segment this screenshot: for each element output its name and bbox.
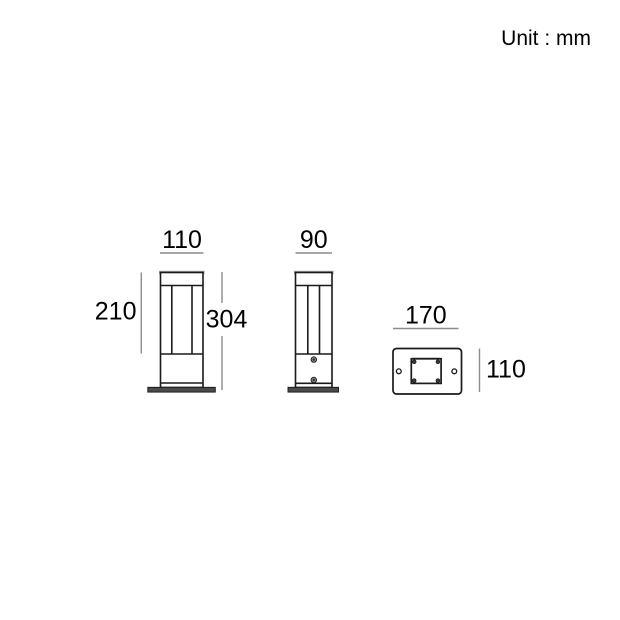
side-base-plate [288,387,339,392]
side-view: 90 [288,226,339,392]
mounting-hole-icon [452,369,457,374]
front-total-height-dim-label: 304 [206,306,248,334]
front-body-outline [161,273,204,388]
drawing-svg: 110 210 304 [0,0,620,620]
side-body-outline [296,273,333,388]
base-plate-view: 170 110 [393,302,526,395]
side-width-dim-label: 90 [300,226,328,254]
screw-icon [311,357,316,362]
screw-icon [412,360,416,364]
technical-drawing-page: Unit : mm 110 210 [0,0,620,620]
front-width-dim-label: 110 [162,226,202,254]
front-base-plate [148,387,216,392]
front-upper-height-dim-label: 210 [95,298,137,326]
unit-label: Unit : mm [501,27,591,51]
front-view: 110 210 304 [95,226,248,392]
mounting-hole-icon [396,369,401,374]
screw-icon [311,377,316,382]
plate-depth-dim-label: 110 [486,356,526,384]
screw-icon [436,360,440,364]
screw-icon [412,379,416,383]
screw-icon [436,379,440,383]
plate-width-dim-label: 170 [405,302,447,330]
